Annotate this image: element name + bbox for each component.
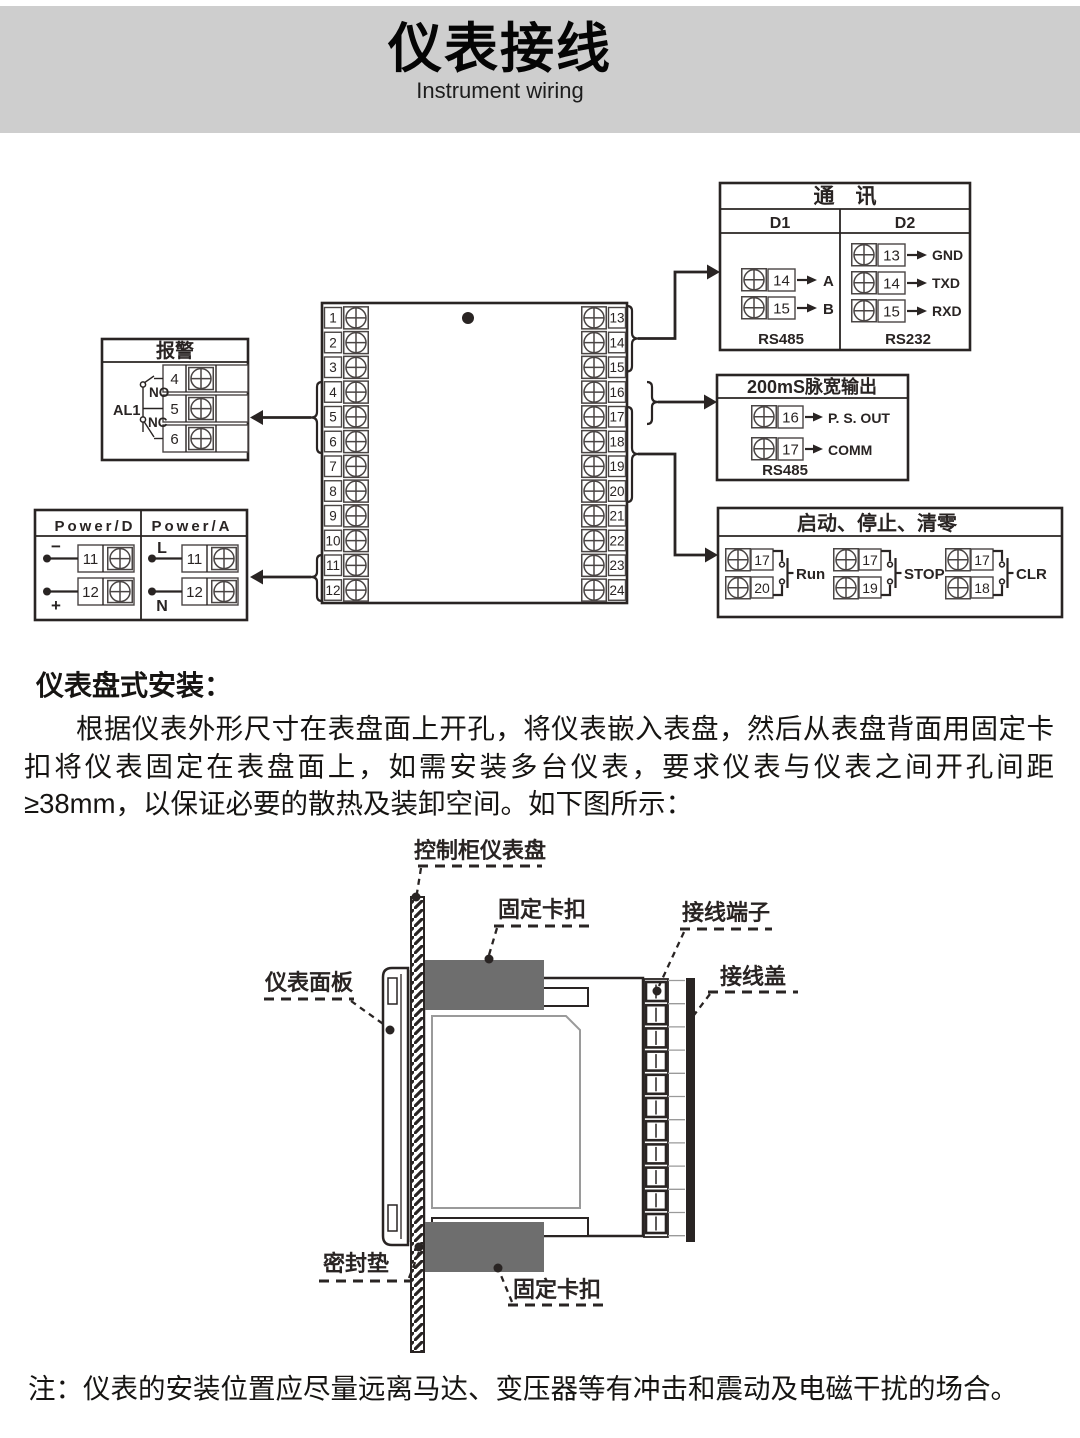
control-stop-top: 17 [862, 552, 878, 568]
comm-d1-label: D1 [770, 215, 791, 232]
alarm-relay-label: AL1 [113, 403, 140, 419]
svg-text:19: 19 [609, 459, 624, 474]
comm-d2-row2-num: 15 [883, 304, 900, 321]
fixing-clip-bottom [424, 1222, 544, 1272]
control-clr-top: 17 [974, 552, 990, 568]
control-title: 启动、停止、清零 [797, 511, 958, 535]
terminal-strip-cells [646, 981, 685, 1236]
comm-box: 通 讯 D1 D2 14 A 15 B RS485 13 GND 14 TXD … [720, 183, 970, 350]
control-clr-bottom: 18 [974, 580, 990, 596]
alarm-title: 报警 [156, 339, 194, 362]
alarm-terminal-6: 6 [170, 431, 178, 448]
svg-text:5: 5 [329, 410, 337, 425]
power-a-num-11: 11 [187, 551, 203, 568]
label-fixing-clip-top: 固定卡扣 [498, 897, 586, 922]
control-stop-label: STOP [904, 566, 945, 583]
alarm-no-label: NO [149, 385, 169, 400]
callout-cover: 接线盖 [694, 964, 798, 1015]
alarm-box: 报警 4 5 6 NO NC AL1 [102, 339, 248, 460]
fixing-clip-top [424, 960, 544, 1010]
comm-d2-row0-target: GND [932, 247, 963, 263]
svg-text:14: 14 [609, 335, 625, 350]
comm-title: 通 讯 [814, 185, 877, 208]
comm-d2-row1-num: 14 [883, 276, 900, 293]
power-d-num-11: 11 [83, 551, 99, 568]
power-a-sign-l: L [157, 540, 167, 557]
label-cabinet-panel: 控制柜仪表盘 [414, 838, 546, 863]
comm-d2-row2-target: RXD [932, 303, 962, 319]
power-a-sign-n: N [156, 598, 168, 615]
svg-text:1: 1 [329, 311, 337, 326]
power-a-label: Power/A [151, 518, 232, 535]
alarm-terminal-4: 4 [170, 371, 178, 388]
mounting-paragraph: 根据仪表外形尺寸在表盘面上开孔，将仪表嵌入表盘，然后从表盘背面用固定卡扣将仪表固… [24, 710, 1054, 823]
svg-text:15: 15 [609, 360, 624, 375]
svg-text:21: 21 [609, 509, 624, 524]
comm-d1-row0-num: 14 [773, 273, 790, 290]
comm-d2-bus: RS232 [885, 331, 931, 348]
callout-panel: 控制柜仪表盘 [412, 838, 547, 902]
body-inner-outline [432, 1016, 580, 1208]
svg-text:17: 17 [609, 410, 624, 425]
svg-text:13: 13 [609, 311, 624, 326]
pulse-row0-num: 16 [782, 410, 799, 427]
front-bezel [383, 968, 408, 1245]
cabinet-panel-hatched [411, 897, 424, 1352]
pulse-title: 200mS脉宽输出 [747, 376, 877, 397]
svg-text:20: 20 [609, 484, 624, 499]
power-d-sign-minus: − [51, 537, 61, 556]
panel-mark-dot [462, 312, 474, 324]
svg-text:18: 18 [609, 434, 624, 449]
pulse-bus: RS485 [762, 462, 808, 479]
pulse-row1-num: 17 [782, 442, 799, 459]
svg-text:24: 24 [609, 583, 625, 598]
power-d-num-12: 12 [82, 584, 99, 601]
svg-text:2: 2 [329, 335, 337, 350]
label-front-panel: 仪表面板 [264, 970, 354, 995]
control-run-label: Run [796, 566, 825, 583]
callout-front: 仪表面板 [264, 970, 395, 1035]
main-terminal-block: 113214315416517618719820921102211231224 [322, 303, 627, 603]
comm-d1-row1-num: 15 [773, 301, 790, 318]
svg-text:8: 8 [329, 484, 337, 499]
mounting-diagram: 控制柜仪表盘 固定卡扣 接线端子 接线盖 仪表面板 [264, 838, 798, 1352]
svg-text:22: 22 [609, 533, 624, 548]
control-run-top: 17 [754, 552, 770, 568]
control-box: 启动、停止、清零 17 20 Run 17 19 S [718, 508, 1062, 617]
label-wiring-cover: 接线盖 [720, 964, 786, 989]
power-d-label: Power/D [54, 518, 135, 535]
svg-text:4: 4 [329, 385, 337, 400]
control-clr-label: CLR [1016, 566, 1047, 583]
label-sealing-gasket: 密封垫 [323, 1251, 389, 1276]
control-stop-bottom: 19 [862, 580, 878, 596]
svg-text:16: 16 [609, 385, 624, 400]
comm-d2-row1-target: TXD [932, 275, 960, 291]
label-fixing-clip-bottom: 固定卡扣 [513, 1277, 601, 1302]
svg-text:12: 12 [325, 583, 340, 598]
pulse-row0-target: P. S. OUT [828, 410, 890, 426]
svg-text:10: 10 [325, 533, 340, 548]
bottom-note: 注：仪表的安装位置应尽量远离马达、变压器等有冲击和震动及电磁干扰的场合。 [28, 1366, 1068, 1406]
pulse-row1-target: COMM [828, 442, 872, 458]
svg-text:7: 7 [329, 459, 337, 474]
svg-text:11: 11 [326, 558, 340, 573]
svg-text:23: 23 [609, 558, 624, 573]
svg-text:3: 3 [329, 360, 337, 375]
comm-d2-label: D2 [895, 215, 916, 232]
pulse-output-box: 200mS脉宽输出 16 P. S. OUT 17 COMM RS485 [717, 375, 908, 480]
comm-d1-row1-target: B [823, 301, 834, 318]
alarm-nc-label: NC [148, 415, 168, 430]
comm-d1-bus: RS485 [758, 331, 804, 348]
power-a-num-12: 12 [186, 584, 203, 601]
alarm-terminal-5: 5 [170, 401, 178, 418]
label-wiring-terminal: 接线端子 [682, 900, 770, 925]
control-run-bottom: 20 [754, 580, 770, 596]
callout-clip-top: 固定卡扣 [485, 897, 591, 964]
comm-d1-row0-target: A [823, 273, 834, 290]
wiring-cover-bar [686, 978, 695, 1242]
svg-text:9: 9 [329, 509, 337, 524]
power-d-sign-plus: + [51, 596, 61, 615]
power-box: Power/D Power/A 11 12 − + 11 12 L N [35, 510, 247, 620]
mounting-section-heading: 仪表盘式安装： [36, 664, 232, 704]
svg-text:6: 6 [329, 434, 337, 449]
comm-d2-row0-num: 13 [883, 248, 900, 265]
callout-gasket: 密封垫 [319, 1243, 424, 1282]
